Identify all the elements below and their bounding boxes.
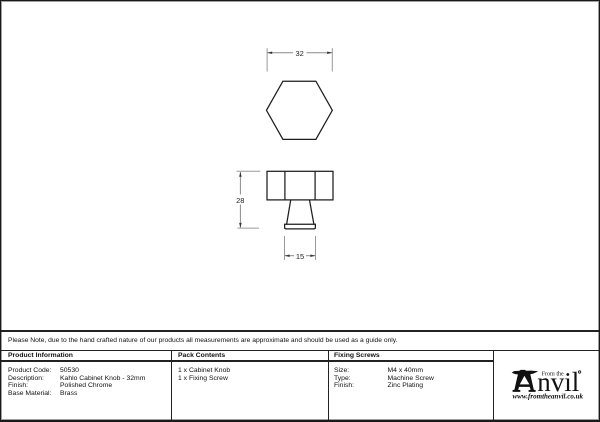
svg-text:32: 32 — [296, 49, 304, 58]
svg-text:15: 15 — [296, 252, 304, 261]
svg-text:28: 28 — [236, 196, 244, 205]
svg-text:www.fromtheanvil.co.uk: www.fromtheanvil.co.uk — [513, 393, 584, 401]
